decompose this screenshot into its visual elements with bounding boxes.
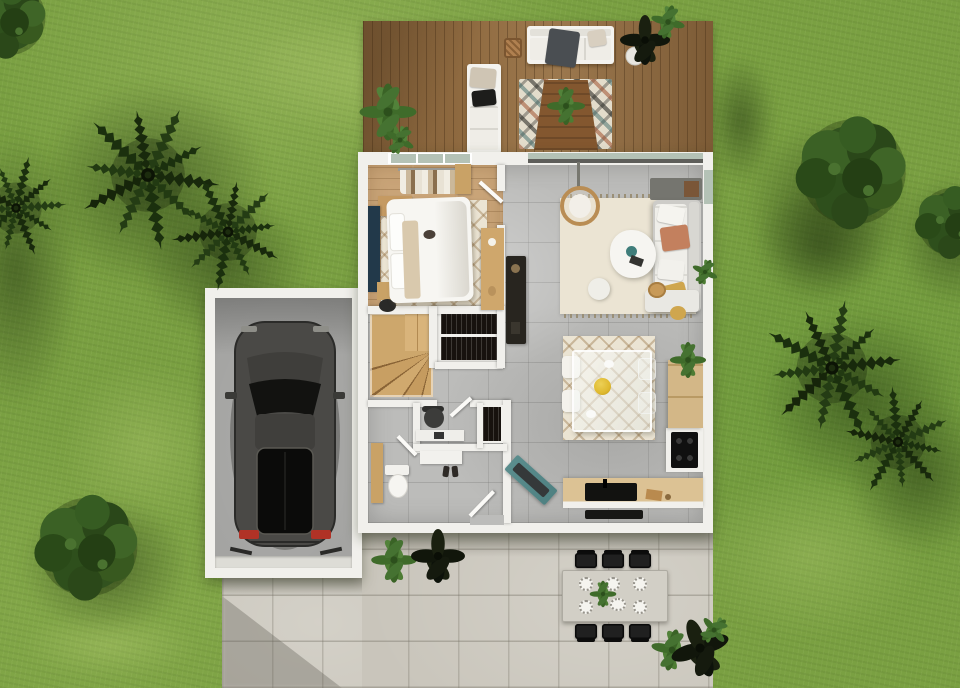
- bed-throw: [402, 220, 421, 299]
- bedroom-console: [481, 228, 504, 310]
- console-box: [684, 181, 699, 197]
- tree-shadow: [706, 55, 776, 185]
- hanging-clothes-row: [441, 312, 497, 334]
- shoe: [451, 466, 458, 478]
- yellow-fruit-bowl: [594, 378, 611, 395]
- shoe-console: [420, 451, 462, 464]
- outdoor-chair: [629, 553, 651, 568]
- garage-floor: [215, 298, 352, 556]
- basket-mustard: [670, 306, 686, 320]
- hanging-chair-cushion: [569, 194, 591, 218]
- place-setting: [633, 600, 647, 614]
- deck-lantern: [504, 38, 522, 58]
- deck-bench-pillow-black: [471, 89, 497, 107]
- outdoor-chair: [602, 553, 624, 568]
- living-side-window: [704, 170, 713, 204]
- sideboard-basket: [511, 264, 520, 273]
- wall-living-left: [497, 306, 505, 368]
- mini-wardrobe: [481, 405, 503, 443]
- hanging-clothes-row: [483, 407, 501, 441]
- coffee-table: [610, 230, 656, 278]
- wc-cabinet: [371, 443, 383, 503]
- hanging-chair: [560, 186, 600, 226]
- kitchen-faucet: [603, 479, 607, 488]
- wall-stairwell: [429, 306, 437, 368]
- deck-sofa-pillow: [587, 29, 607, 48]
- table-dish: [604, 360, 614, 368]
- cat-on-bed: [423, 230, 435, 239]
- pouf: [588, 278, 610, 300]
- wall-study-bottom: [413, 444, 507, 451]
- duvet-fold: [434, 201, 469, 298]
- kitchen-tall-cabinet: [668, 360, 703, 428]
- place-setting: [579, 577, 593, 591]
- navy-console: [368, 206, 380, 292]
- toilet-bowl: [388, 474, 408, 498]
- office-chair: [424, 408, 444, 428]
- sofa-pillow-terracotta: [659, 224, 690, 252]
- serving-dish: [610, 598, 626, 611]
- wall-below-wardrobe: [435, 362, 503, 369]
- tree-shadow: [20, 495, 190, 635]
- deck-sofa-throw: [545, 28, 581, 68]
- study-desk: [416, 430, 464, 441]
- place-setting: [579, 600, 593, 614]
- sliding-door-rail: [528, 159, 703, 163]
- console-vase: [488, 238, 496, 246]
- deck-bench-pillow-beige: [469, 67, 497, 89]
- laptop: [434, 432, 444, 439]
- garage-door: [215, 556, 352, 568]
- place-setting: [633, 577, 647, 591]
- kitchen-counter: [563, 478, 703, 508]
- double-bed: [386, 197, 474, 304]
- aerial-house-render: [0, 0, 960, 688]
- deck-low-table: [534, 80, 598, 150]
- outdoor-chair: [629, 624, 651, 639]
- living-sideboard: [506, 256, 526, 344]
- place-setting: [606, 577, 620, 591]
- entry-threshold: [470, 515, 504, 525]
- wardrobe: [435, 306, 503, 366]
- garage-shadow-on-patio: [222, 578, 362, 596]
- wall-bedroom-right: [497, 165, 505, 191]
- cooktop: [671, 432, 698, 468]
- cutting-board: [645, 489, 662, 501]
- kitchen-jar: [665, 494, 671, 500]
- book: [629, 255, 644, 267]
- cooktop-counter: [666, 428, 703, 472]
- outdoor-chair: [602, 624, 624, 639]
- table-dish: [586, 410, 596, 418]
- hanging-chair-strap: [577, 162, 580, 188]
- bedroom-shelf: [455, 164, 471, 194]
- sofa-pillow-white: [657, 259, 685, 282]
- glass-dining-table: [572, 350, 652, 432]
- outdoor-chair: [575, 553, 597, 568]
- kitchen-mat: [585, 510, 643, 519]
- deck-bench-cushions: [470, 106, 498, 150]
- sideboard-decor: [511, 322, 520, 334]
- bedroom-window: [388, 153, 472, 164]
- console-basket: [488, 286, 496, 296]
- media-console: [650, 178, 702, 200]
- kitchen-sink: [585, 483, 637, 501]
- hanging-clothes-row: [441, 337, 497, 360]
- outdoor-chair: [575, 624, 597, 639]
- house-shadow-on-patio: [358, 533, 713, 557]
- tree-shadow: [755, 185, 885, 305]
- basket-tan: [648, 282, 666, 298]
